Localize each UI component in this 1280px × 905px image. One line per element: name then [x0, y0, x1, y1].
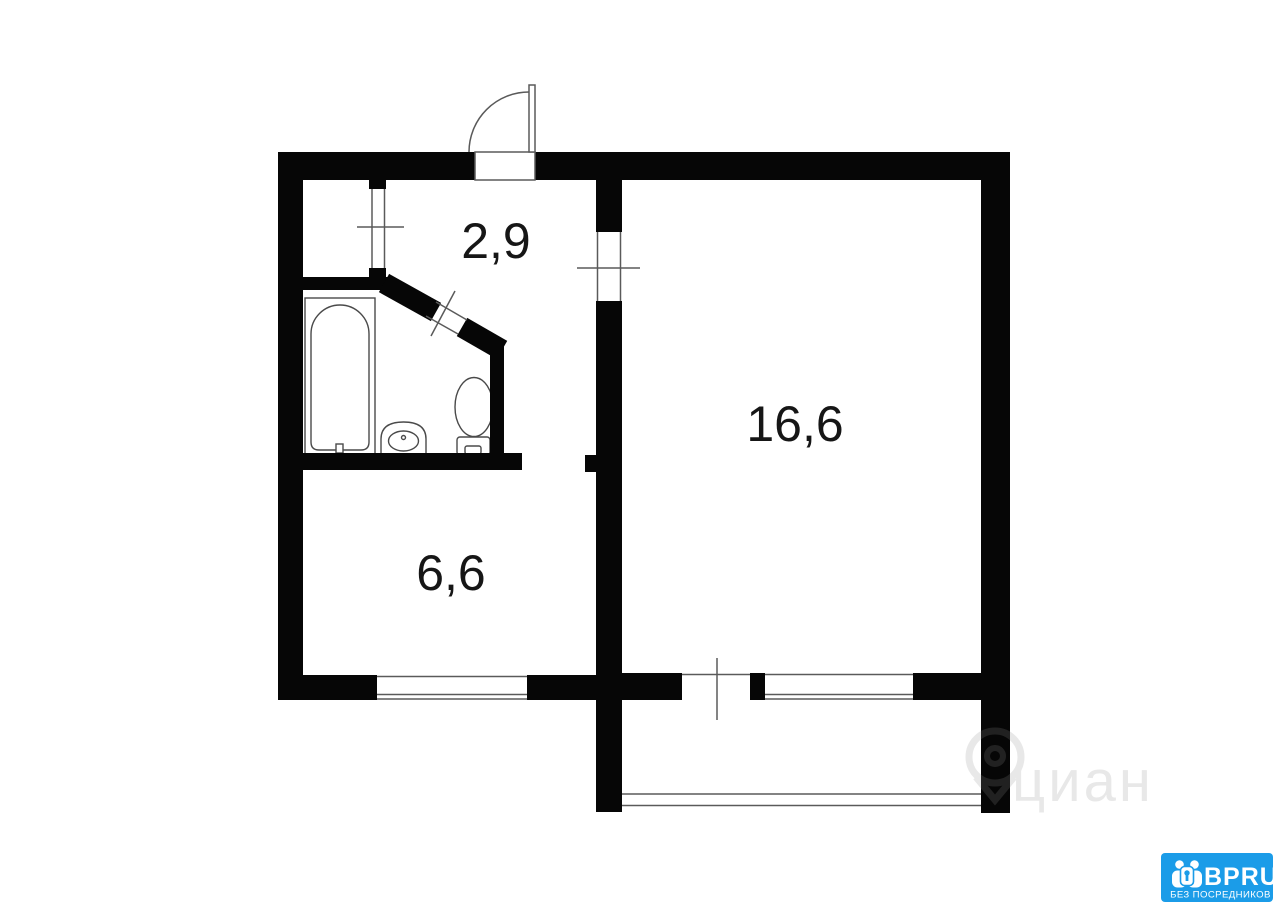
wall-kitchen-bottom-left: [278, 675, 377, 700]
sink-drain: [402, 436, 406, 440]
logo-brand-text: BPRU: [1204, 863, 1279, 891]
bathroom-wall-top: [278, 277, 388, 290]
wall-top-right: [535, 152, 1010, 180]
walls: [278, 152, 1010, 813]
bathroom-door-edge-lower: [426, 316, 458, 334]
bathroom-wall-right: [490, 341, 504, 455]
watermark-text: циан: [1012, 749, 1154, 814]
wall-left: [278, 152, 303, 700]
bathtub: [311, 305, 369, 450]
logo-badge: BPRU БЕЗ ПОСРЕДНИКОВ: [1161, 853, 1279, 902]
kitchen-door-jamb: [585, 455, 596, 472]
wall-divider-lower: [596, 301, 622, 812]
hallway-area-label: 2,9: [461, 213, 531, 269]
keyhole-stem: [1186, 875, 1189, 882]
toilet-bowl: [455, 378, 493, 437]
kitchen-window: [377, 677, 527, 700]
wall-top-left: [278, 152, 475, 180]
wall-living-bottom-left: [622, 673, 682, 700]
bathtub-tap: [336, 444, 343, 453]
wall-divider-upper: [596, 180, 622, 232]
floorplan-image: 2,9 16,6 6,6 циан BPRU БЕЗ ПОСРЕДНИКОВ: [0, 0, 1280, 905]
wall-living-bottom-mid: [750, 673, 765, 700]
bathroom-wall-bottom: [278, 453, 522, 470]
sink-bowl: [389, 431, 419, 451]
bathroom-wall-diagonal-a: [384, 283, 436, 312]
closet-door-stub-top: [369, 180, 386, 189]
entrance-door-swing-arc: [469, 92, 529, 152]
wall-right: [981, 152, 1010, 813]
toilet-flush-button: [465, 446, 481, 454]
wall-living-bottom-right: [913, 673, 981, 700]
bathroom-fixtures: [305, 298, 493, 456]
living-window: [765, 675, 913, 700]
floorplan-svg: 2,9 16,6 6,6 циан BPRU БЕЗ ПОСРЕДНИКОВ: [0, 0, 1280, 905]
wall-kitchen-bottom-right: [527, 675, 596, 700]
entrance-threshold: [475, 152, 535, 180]
living-room-area-label: 16,6: [746, 396, 843, 452]
entrance-door-leaf: [529, 85, 535, 152]
kitchen-area-label: 6,6: [416, 545, 486, 601]
logo-tagline-text: БЕЗ ПОСРЕДНИКОВ: [1170, 890, 1271, 901]
